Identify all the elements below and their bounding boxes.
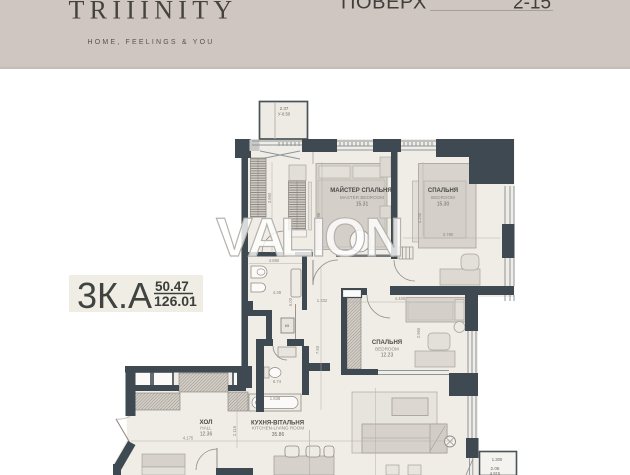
svg-text:1.838: 1.838: [270, 396, 281, 401]
svg-text:12.23: 12.23: [381, 353, 394, 359]
svg-text:4.39: 4.39: [273, 290, 282, 295]
svg-text:СПАЛЬНЯ: СПАЛЬНЯ: [372, 340, 402, 346]
svg-text:6.74: 6.74: [273, 379, 282, 384]
svg-text:4.240: 4.240: [417, 212, 422, 223]
svg-text:2.37: 2.37: [280, 106, 289, 111]
svg-text:MASTER BEDROOM: MASTER BEDROOM: [340, 195, 384, 200]
svg-text:O: O: [324, 206, 367, 268]
svg-text:2.965: 2.965: [416, 327, 421, 338]
svg-text:3.950: 3.950: [267, 192, 272, 203]
svg-text:ПОВЕРХ: ПОВЕРХ: [341, 0, 427, 14]
svg-text:HALL: HALL: [200, 426, 212, 431]
svg-text:KITCHEN-LIVING ROOM: KITCHEN-LIVING ROOM: [252, 426, 304, 431]
svg-text:2-15: 2-15: [513, 0, 551, 14]
svg-text:BEDROOM: BEDROOM: [431, 195, 455, 200]
svg-text:TRIIINITY: TRIIINITY: [69, 0, 238, 25]
svg-text:4.915: 4.915: [490, 471, 501, 475]
svg-text:1.300: 1.300: [492, 457, 503, 462]
svg-text:У-0.50: У-0.50: [278, 112, 291, 117]
svg-text:12.36: 12.36: [200, 432, 213, 438]
svg-text:35.86: 35.86: [272, 432, 285, 438]
svg-text:4.400: 4.400: [395, 296, 406, 301]
svg-text:МАЙСТЕР СПАЛЬНЯ: МАЙСТЕР СПАЛЬНЯ: [330, 186, 391, 194]
svg-text:3.780: 3.780: [443, 232, 454, 237]
svg-text:15.30: 15.30: [437, 202, 450, 208]
svg-text:50.47: 50.47: [155, 279, 189, 294]
svg-text:BEDROOM: BEDROOM: [375, 347, 399, 352]
svg-text:N: N: [365, 206, 405, 268]
svg-text:7.93: 7.93: [315, 345, 320, 354]
svg-text:65: 65: [285, 323, 290, 328]
svg-text:L: L: [280, 206, 314, 268]
svg-text:1.332: 1.332: [317, 298, 328, 303]
svg-text:3К.А: 3К.А: [77, 275, 152, 316]
svg-text:2.116: 2.116: [232, 425, 237, 436]
svg-text:126.01: 126.01: [154, 293, 197, 309]
svg-text:4.175: 4.175: [183, 436, 194, 441]
svg-text:СПАЛЬНЯ: СПАЛЬНЯ: [428, 188, 458, 194]
svg-text:HOME, FEELINGS & YOU: HOME, FEELINGS & YOU: [87, 39, 214, 46]
svg-text:6.00: 6.00: [288, 297, 293, 306]
